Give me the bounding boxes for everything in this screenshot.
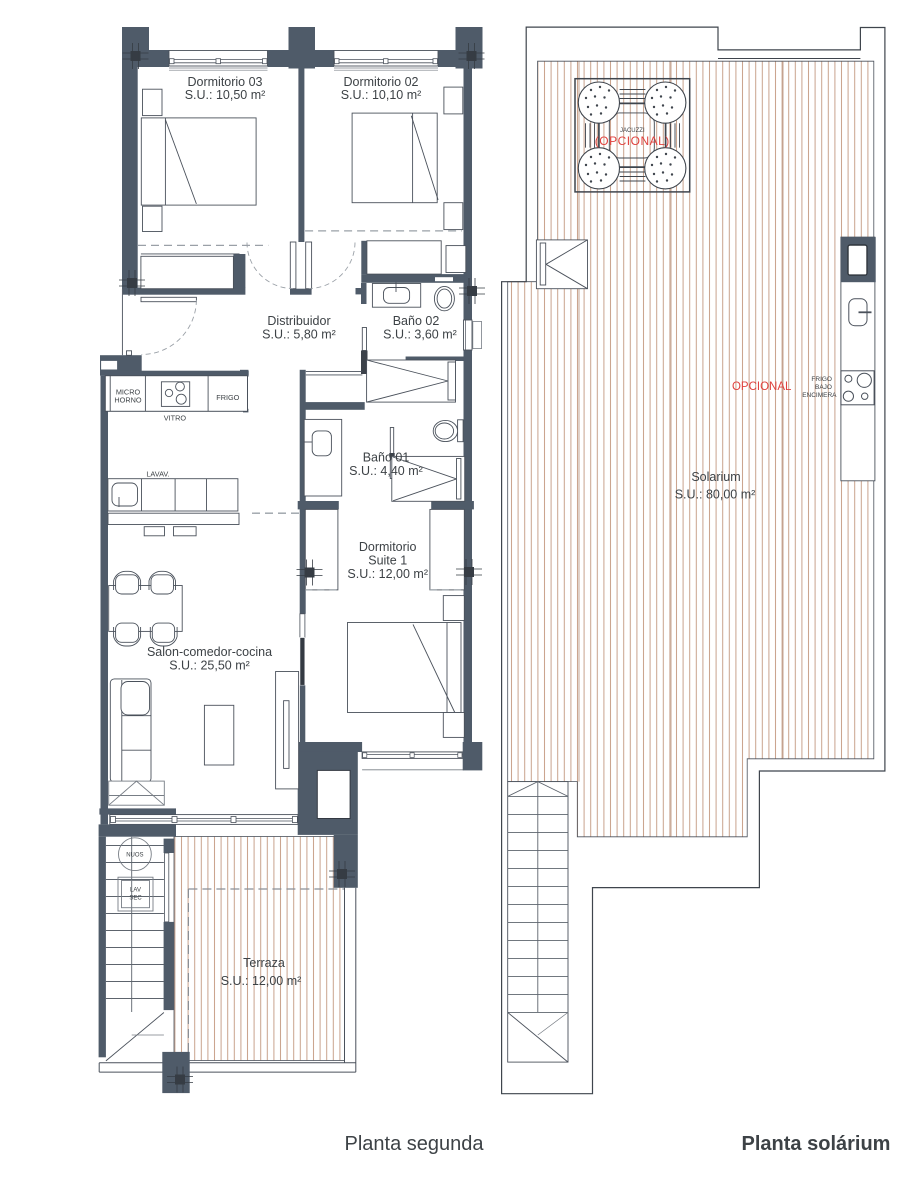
svg-text:Dormitorio 02: Dormitorio 02 [343, 75, 418, 89]
svg-text:Planta segunda: Planta segunda [344, 1133, 484, 1155]
svg-text:Planta solárium: Planta solárium [742, 1133, 891, 1155]
svg-text:FRIGO: FRIGO [811, 376, 832, 383]
svg-text:Dormitorio: Dormitorio [359, 540, 417, 554]
svg-text:Salon-comedor-cocina: Salon-comedor-cocina [147, 645, 272, 659]
svg-text:S.U.: 10,10 m²: S.U.: 10,10 m² [341, 88, 422, 102]
svg-text:Baño 02: Baño 02 [393, 314, 440, 328]
svg-text:Solarium: Solarium [691, 470, 740, 484]
svg-text:Baño 01: Baño 01 [363, 451, 410, 465]
svg-text:(OPCIONAL): (OPCIONAL) [595, 134, 670, 148]
svg-text:S.U.: 3,60 m²: S.U.: 3,60 m² [383, 328, 457, 342]
svg-text:NUOS: NUOS [126, 853, 143, 859]
svg-text:S.U.: 12,00 m²: S.U.: 12,00 m² [347, 567, 428, 581]
svg-text:BAJO: BAJO [815, 384, 832, 391]
svg-text:S.U.: 80,00 m²: S.U.: 80,00 m² [675, 488, 756, 502]
svg-text:ENCIMERA: ENCIMERA [802, 392, 837, 399]
svg-text:LAV: LAV [130, 888, 141, 894]
svg-text:Suite 1: Suite 1 [368, 554, 407, 568]
svg-text:LAVAV.: LAVAV. [146, 470, 169, 479]
svg-text:FRIGO: FRIGO [216, 393, 239, 402]
svg-text:Distribuidor: Distribuidor [267, 314, 330, 328]
svg-text:S.U.: 4,40 m²: S.U.: 4,40 m² [349, 464, 423, 478]
svg-text:Terraza: Terraza [243, 956, 285, 970]
svg-text:SEC: SEC [129, 896, 142, 902]
svg-text:S.U.: 5,80 m²: S.U.: 5,80 m² [262, 328, 336, 342]
svg-text:S.U.: 10,50 m²: S.U.: 10,50 m² [185, 88, 266, 102]
svg-text:OPCIONAL: OPCIONAL [732, 381, 792, 393]
svg-text:VITRO: VITRO [164, 414, 187, 423]
svg-text:HORNO: HORNO [114, 396, 141, 405]
svg-text:Dormitorio 03: Dormitorio 03 [187, 75, 262, 89]
svg-text:S.U.: 25,50 m²: S.U.: 25,50 m² [169, 659, 250, 673]
svg-text:S.U.: 12,00 m²: S.U.: 12,00 m² [221, 974, 302, 988]
